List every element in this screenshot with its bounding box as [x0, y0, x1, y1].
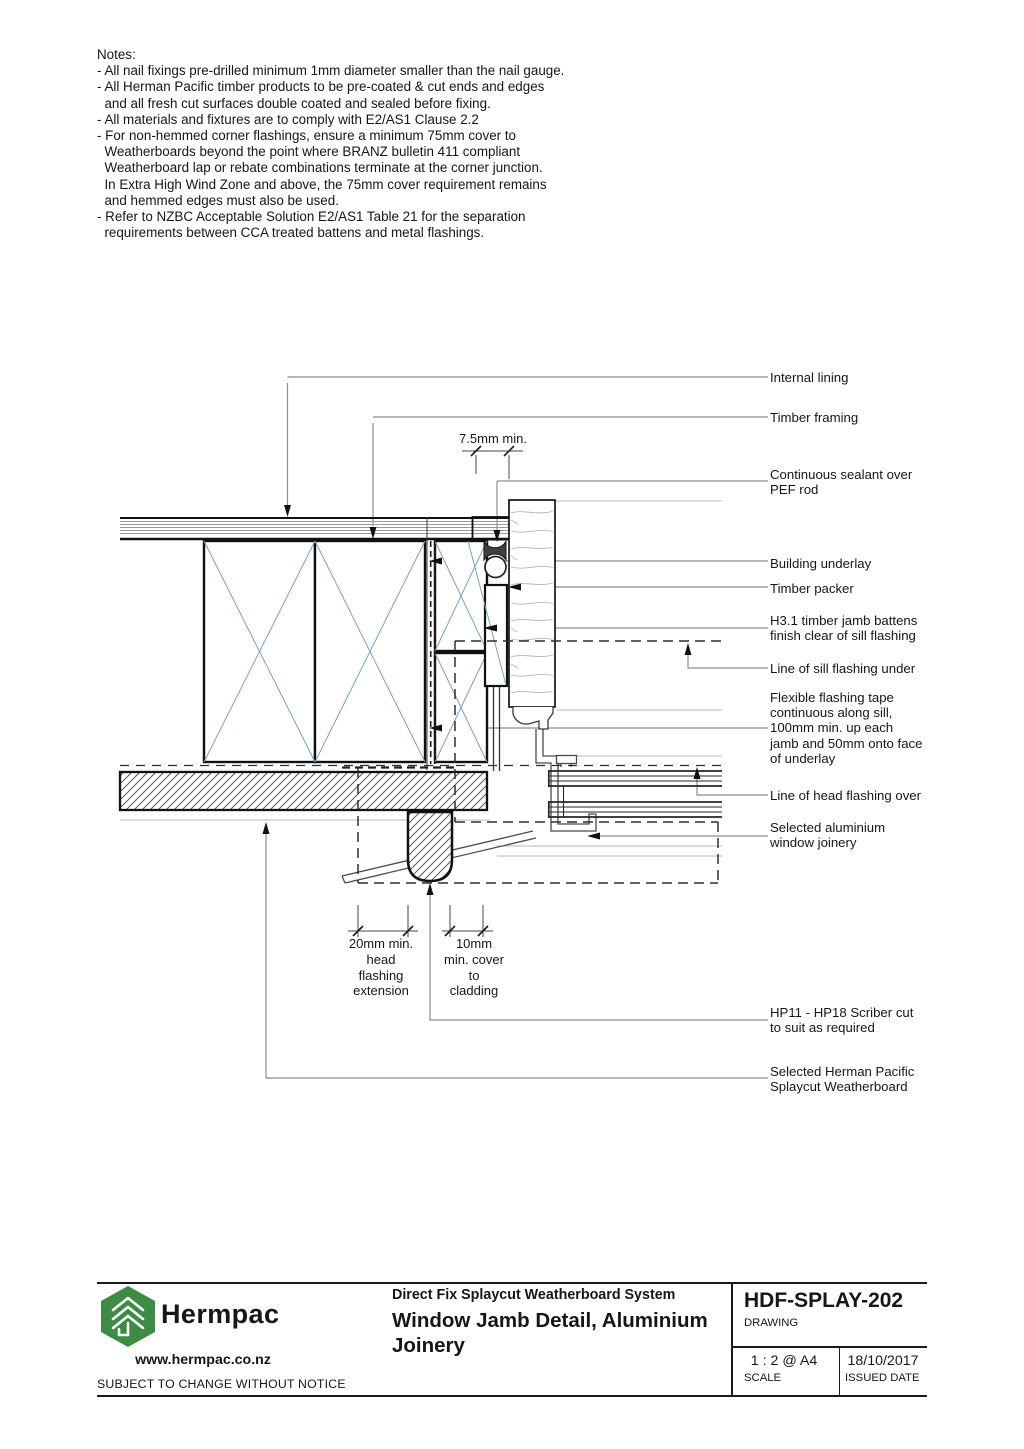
dimension-7-5mm [462, 446, 523, 479]
scale-value: 1 : 2 @ A4 [731, 1353, 837, 1369]
hermpac-logo-icon [98, 1285, 158, 1349]
dimension-10mm [442, 905, 493, 937]
drawing-code-label: DRAWING [744, 1317, 798, 1329]
system-name: Direct Fix Splaycut Weatherboard System [392, 1287, 675, 1303]
label-sill-flashing: Line of sill flashing under [770, 661, 940, 676]
drawing-title: Window Jamb Detail, Aluminium Joinery [392, 1309, 708, 1358]
dimension-20mm [348, 905, 418, 937]
label-splaycut-weatherboard: Selected Herman Pacific Splaycut Weather… [770, 1064, 940, 1094]
label-timber-framing: Timber framing [770, 410, 940, 425]
dimension-text-7-5mm: 7.5mm min. [448, 431, 538, 447]
weatherboard-bottom-profile [513, 707, 553, 729]
issued-date-label: ISSUED DATE [845, 1372, 920, 1384]
label-scriber: HP11 - HP18 Scriber cut to suit as requi… [770, 1005, 940, 1035]
label-aluminium-joinery: Selected aluminium window joinery [770, 820, 940, 850]
label-head-flashing: Line of head flashing over [770, 788, 940, 803]
label-internal-lining: Internal lining [770, 370, 940, 385]
scale-label: SCALE [744, 1372, 781, 1384]
dimension-text-10mm: 10mm min. cover to cladding [436, 936, 512, 999]
weatherboard-section [509, 500, 555, 729]
label-jamb-battens: H3.1 timber jamb battens finish clear of… [770, 613, 940, 643]
titleblock-divider-horizontal [731, 1346, 927, 1348]
scriber-block [408, 812, 452, 881]
label-sealant-pef-rod: Continuous sealant over PEF rod [770, 467, 940, 497]
issued-date-value: 18/10/2017 [839, 1353, 927, 1369]
timber-framing [204, 541, 487, 762]
cladding-strip [120, 772, 487, 810]
titleblock-divider-vertical [731, 1282, 733, 1395]
website-link[interactable]: www.hermpac.co.nz [97, 1352, 309, 1368]
brand-name: Hermpac [161, 1299, 279, 1330]
label-timber-packer: Timber packer [770, 581, 940, 596]
jamb-batten [494, 687, 500, 771]
titleblock-bottom-rule [97, 1395, 927, 1397]
internal-lining [120, 517, 523, 540]
label-building-underlay: Building underlay [770, 556, 940, 571]
label-flashing-tape: Flexible flashing tape continuous along … [770, 690, 940, 766]
drawing-code: HDF-SPLAY-202 [744, 1289, 903, 1313]
dimension-text-20mm: 20mm min. head flashing extension [335, 936, 427, 999]
change-notice: SUBJECT TO CHANGE WITHOUT NOTICE [97, 1377, 346, 1391]
drawing-page: { "notes": { "lines": [ "Notes:", "- All… [0, 0, 1024, 1449]
pef-rod [485, 557, 506, 578]
titleblock-top-rule [97, 1282, 927, 1284]
